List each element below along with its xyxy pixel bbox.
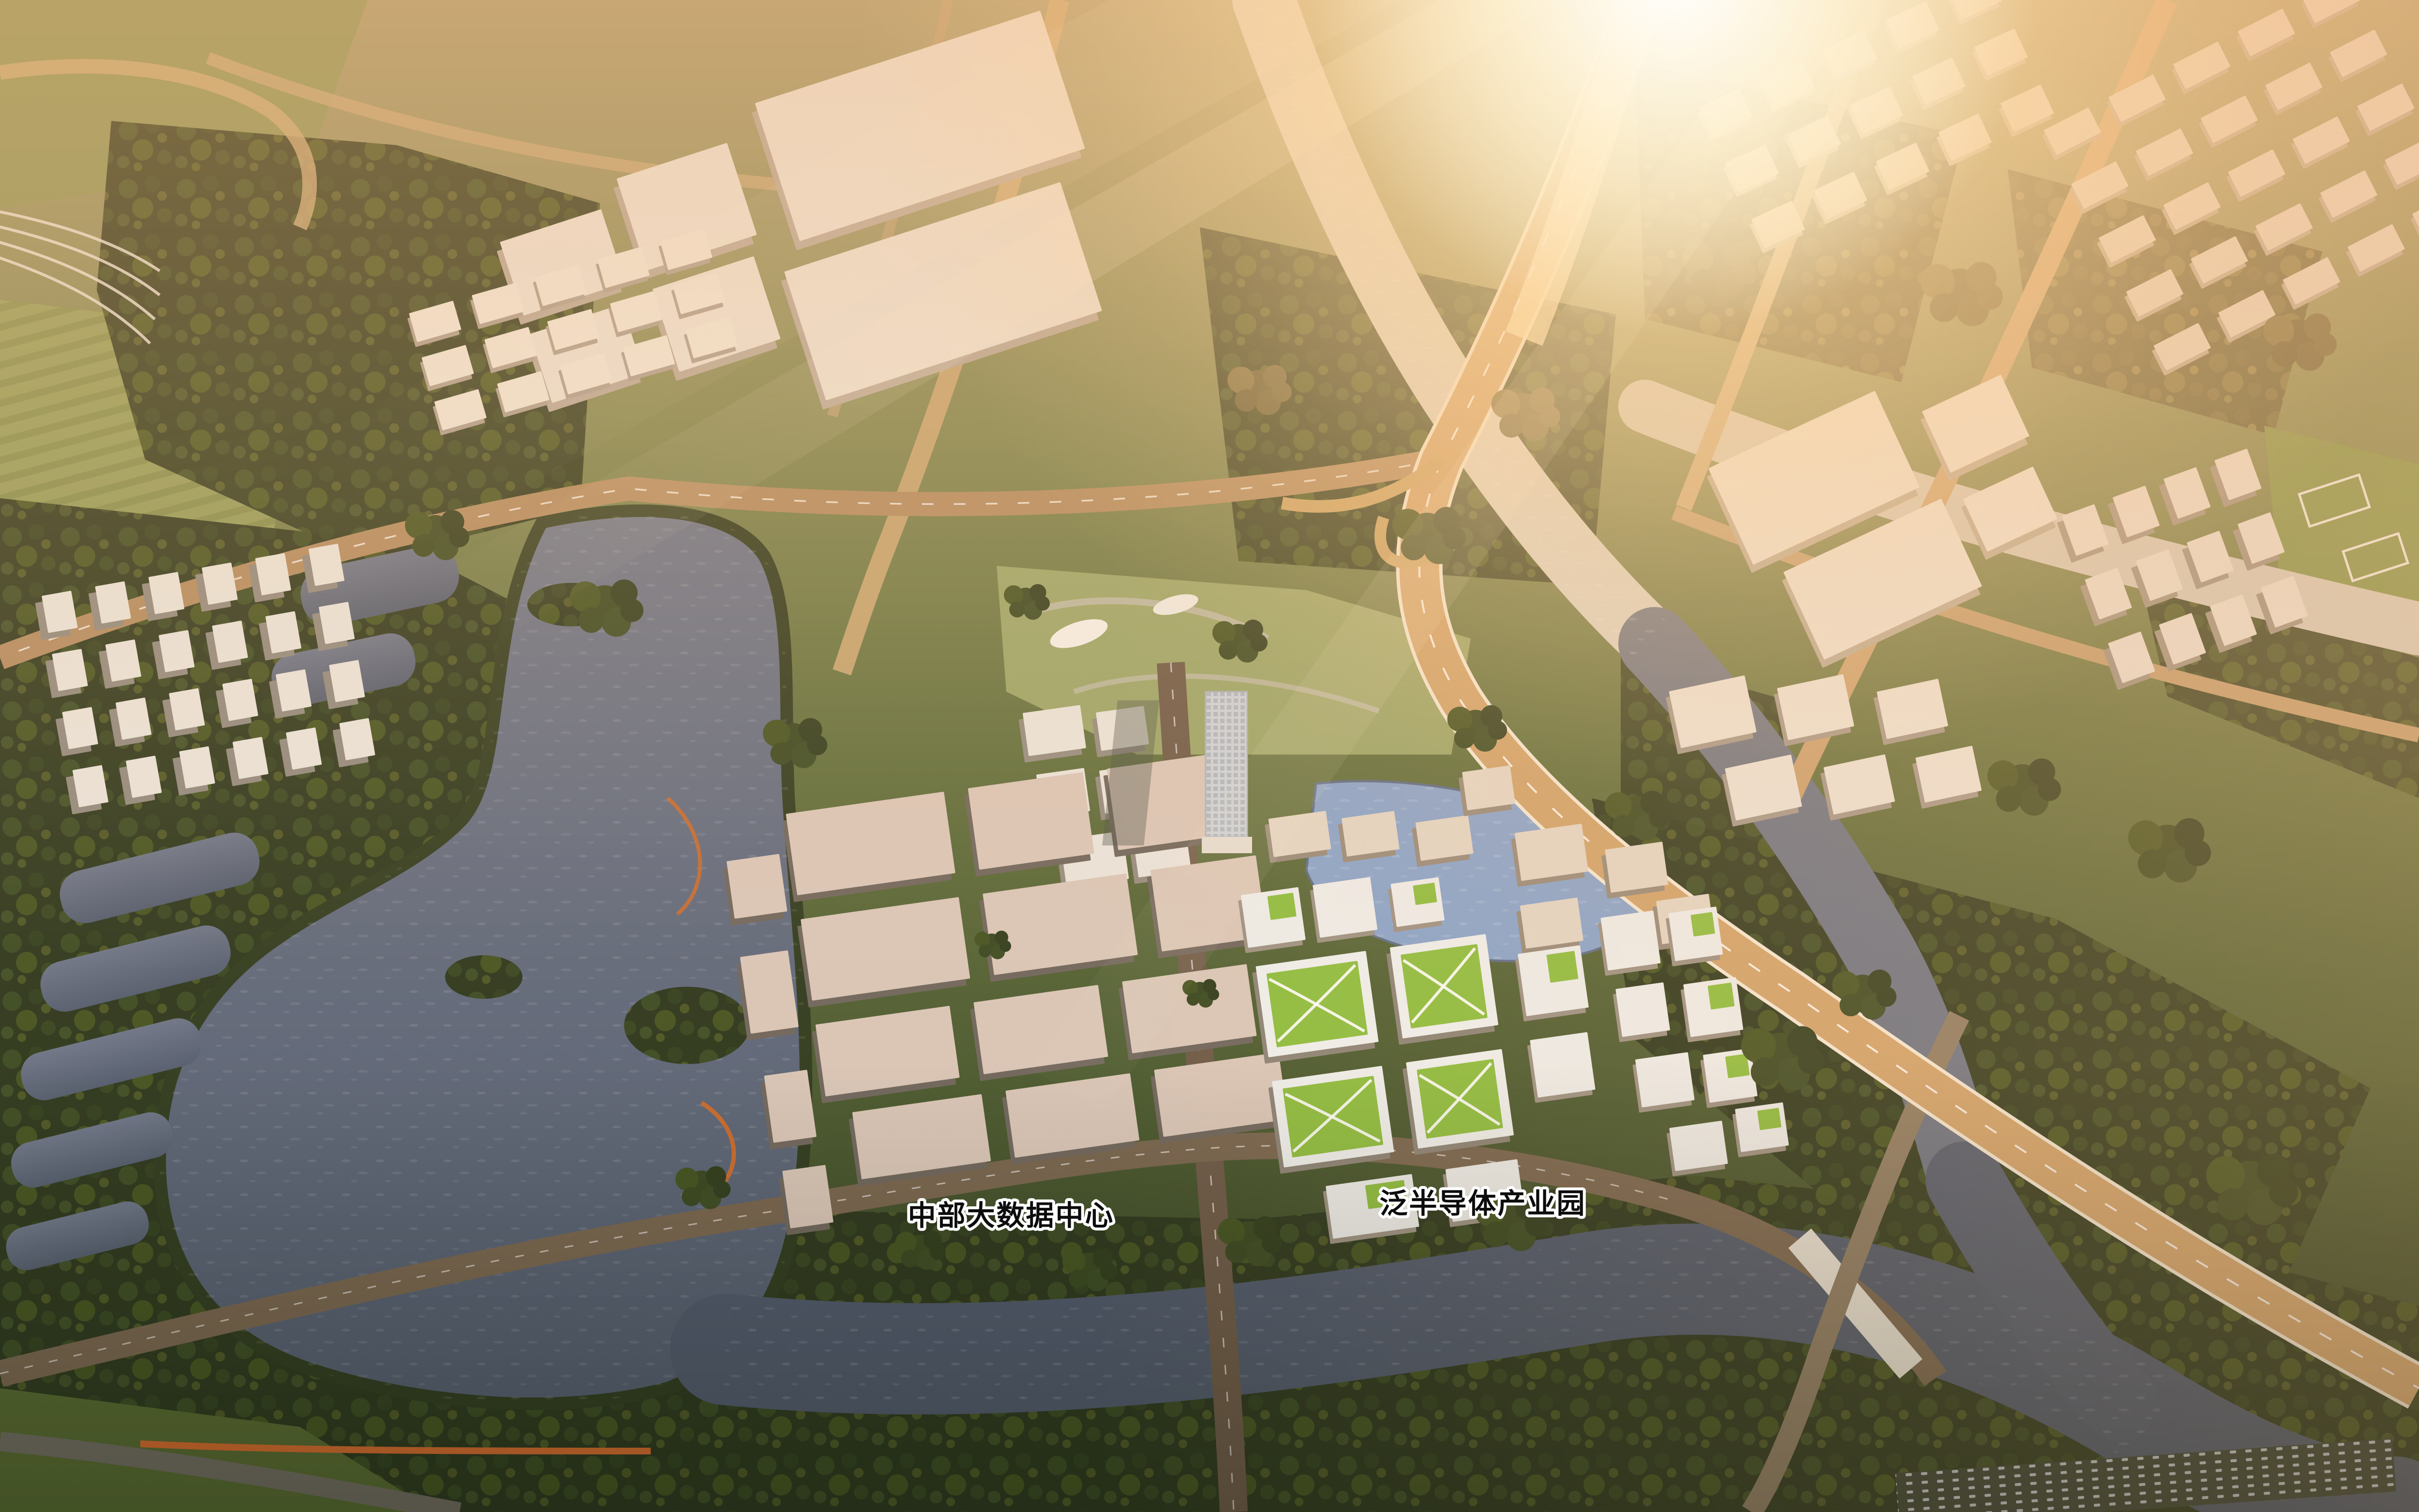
rendered-scene: 中部大数据中心 泛半导体产业园 — [0, 0, 2419, 1512]
aerial-city-rendering: 中部大数据中心 泛半导体产业园 — [0, 0, 2419, 1512]
atmosphere — [0, 0, 2419, 1512]
label-data-center: 中部大数据中心 — [908, 1200, 1114, 1231]
label-semiconductor-park: 泛半导体产业园 — [1379, 1188, 1586, 1219]
vignette — [0, 0, 2419, 1512]
